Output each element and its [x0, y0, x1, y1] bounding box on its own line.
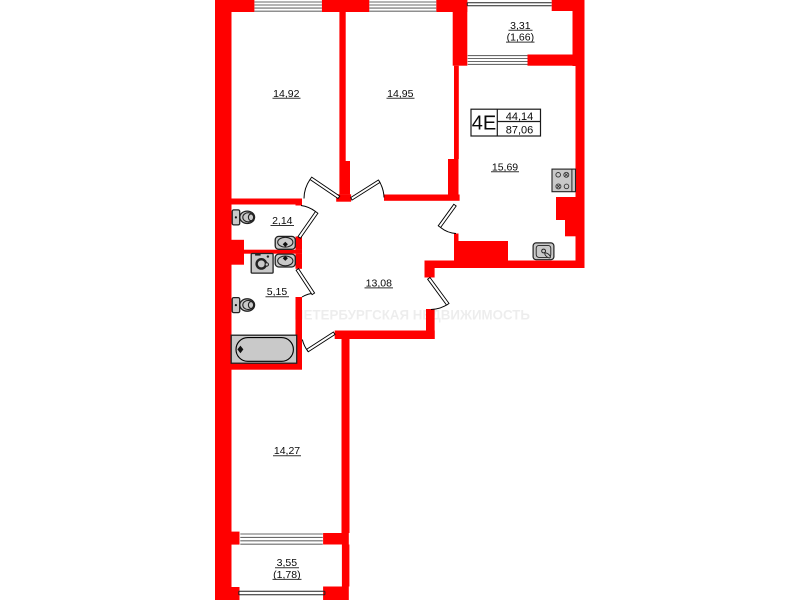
svg-text:44,14: 44,14 [506, 111, 534, 123]
svg-text:4Е: 4Е [472, 113, 496, 135]
svg-text:87,06: 87,06 [506, 125, 534, 137]
svg-text:ПЕТЕРБУРГСКАЯ НЕДВИЖИМОСТЬ: ПЕТЕРБУРГСКАЯ НЕДВИЖИМОСТЬ [294, 307, 530, 323]
